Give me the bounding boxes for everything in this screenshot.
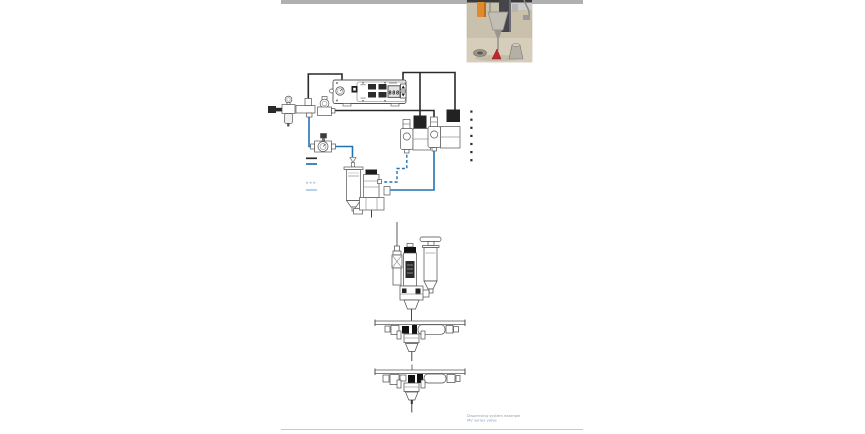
drawing-valve-section-2 bbox=[375, 365, 465, 413]
bullet bbox=[470, 151, 472, 153]
line-style-legend bbox=[306, 158, 317, 190]
regulator-2 bbox=[318, 97, 336, 116]
filter-regulator-unit bbox=[282, 96, 295, 126]
cable-connector bbox=[447, 110, 461, 123]
caption-line2: MV series valve bbox=[467, 418, 497, 423]
bullet bbox=[470, 143, 472, 145]
precision-regulator bbox=[311, 134, 336, 153]
solenoid-valve-left bbox=[401, 116, 431, 154]
bullet bbox=[470, 127, 472, 129]
cable-connector bbox=[414, 116, 427, 129]
mode-button bbox=[368, 92, 376, 98]
valve-cap bbox=[366, 170, 378, 175]
bullet bbox=[470, 111, 472, 113]
syringe-barrel bbox=[424, 248, 437, 282]
drawing-valve-assembly bbox=[392, 222, 441, 321]
product-photo bbox=[467, 0, 532, 62]
air-cylinder bbox=[424, 374, 446, 383]
manifold-bottom-fitting bbox=[307, 113, 313, 117]
bullet bbox=[470, 159, 472, 161]
cartridge-cap bbox=[404, 247, 416, 253]
set-button bbox=[379, 84, 387, 90]
dispense-valve bbox=[360, 170, 391, 218]
bullet bbox=[470, 135, 472, 137]
adjust-knob bbox=[321, 134, 327, 139]
pilot-line-dashed bbox=[379, 151, 407, 182]
valve-indicator bbox=[431, 131, 438, 138]
drawing-valve-section-1 bbox=[375, 320, 465, 362]
dispense-controller: 888 bbox=[330, 80, 407, 106]
filter-bowl bbox=[285, 114, 293, 124]
top-bar bbox=[281, 0, 583, 4]
cartridge-label bbox=[406, 261, 415, 278]
fitting bbox=[512, 4, 518, 12]
manifold-block bbox=[296, 99, 315, 118]
controller-to-valve-cable bbox=[403, 73, 455, 110]
set-button bbox=[379, 92, 387, 98]
mounting-bar bbox=[375, 370, 465, 374]
catalog-page: 888 bbox=[0, 0, 865, 434]
valve-cylinder bbox=[364, 175, 380, 198]
mode-button bbox=[368, 84, 376, 90]
plunger-handle bbox=[420, 237, 441, 242]
retaining-nut bbox=[406, 392, 419, 400]
mounting-bar bbox=[375, 321, 465, 325]
power-connector bbox=[330, 89, 334, 93]
bullet-list bbox=[470, 111, 472, 162]
bottom-rule bbox=[281, 429, 583, 430]
hose-connector bbox=[523, 15, 530, 20]
valve-body bbox=[360, 198, 385, 211]
retaining-nut bbox=[406, 344, 419, 352]
display-readout: 888 bbox=[388, 91, 400, 97]
regulator-to-syringe-line bbox=[336, 147, 353, 158]
manifold-to-regulator-line bbox=[309, 115, 311, 147]
retaining-nut bbox=[404, 300, 419, 309]
side-fitting bbox=[384, 187, 390, 196]
syringe-flange bbox=[344, 167, 363, 170]
valve-indicator bbox=[403, 133, 410, 140]
page-canvas: 888 bbox=[0, 0, 865, 434]
syringe-barrel bbox=[347, 170, 361, 201]
solenoid-valve-right bbox=[428, 110, 460, 152]
pilot-port bbox=[378, 180, 382, 184]
check-valve-fitting bbox=[350, 158, 356, 168]
bullet bbox=[470, 119, 472, 121]
air-supply bbox=[268, 106, 282, 113]
manifold-top-fitting bbox=[305, 99, 312, 106]
